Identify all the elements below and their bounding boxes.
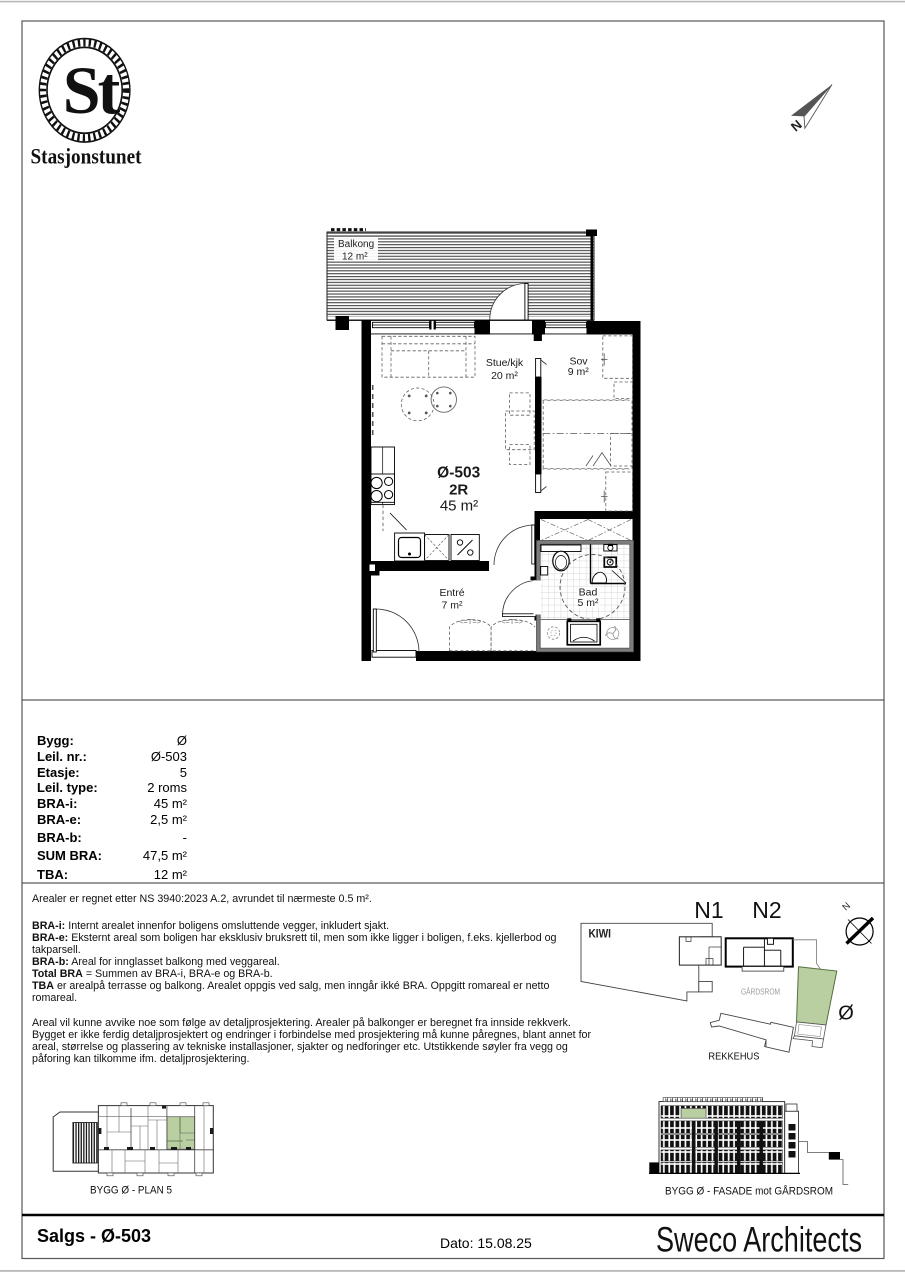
svg-text:<=T=>: <=T=> <box>501 617 524 626</box>
svg-text:N2: N2 <box>752 897 781 923</box>
svg-text:12 m²: 12 m² <box>342 252 368 263</box>
svg-text:Entré: Entré <box>439 587 464 599</box>
svg-text:Stue/kjk: Stue/kjk <box>486 357 524 369</box>
svg-text:9 m²: 9 m² <box>568 366 590 378</box>
svg-text:N1: N1 <box>694 897 723 923</box>
svg-text:20 m²: 20 m² <box>491 370 518 382</box>
svg-text:GÅRDSROM: GÅRDSROM <box>741 987 780 997</box>
svg-text:REKKEHUS: REKKEHUS <box>708 1051 759 1063</box>
svg-text:Ø: Ø <box>838 1003 854 1025</box>
svg-text:Balkong: Balkong <box>338 239 374 250</box>
svg-text:45 m²: 45 m² <box>440 498 478 515</box>
svg-text:BYGG Ø - FASADE mot GÅRDSROM: BYGG Ø - FASADE mot GÅRDSROM <box>665 1185 833 1198</box>
svg-text:5 m²: 5 m² <box>578 597 600 609</box>
svg-text:2R: 2R <box>449 482 468 499</box>
svg-text:N: N <box>840 900 853 913</box>
svg-text:BYGG Ø - PLAN 5: BYGG Ø - PLAN 5 <box>90 1185 172 1197</box>
svg-text:Stasjonstunet: Stasjonstunet <box>31 144 143 169</box>
svg-text:7 m²: 7 m² <box>442 600 464 612</box>
svg-text:<=T=>: <=T=> <box>459 617 482 626</box>
svg-text:Sweco Architects: Sweco Architects <box>656 1221 862 1260</box>
svg-text:KIWI: KIWI <box>589 927 612 941</box>
svg-text:St: St <box>63 52 121 128</box>
svg-text:Ø-503: Ø-503 <box>437 464 480 481</box>
svg-text:N: N <box>788 117 805 135</box>
